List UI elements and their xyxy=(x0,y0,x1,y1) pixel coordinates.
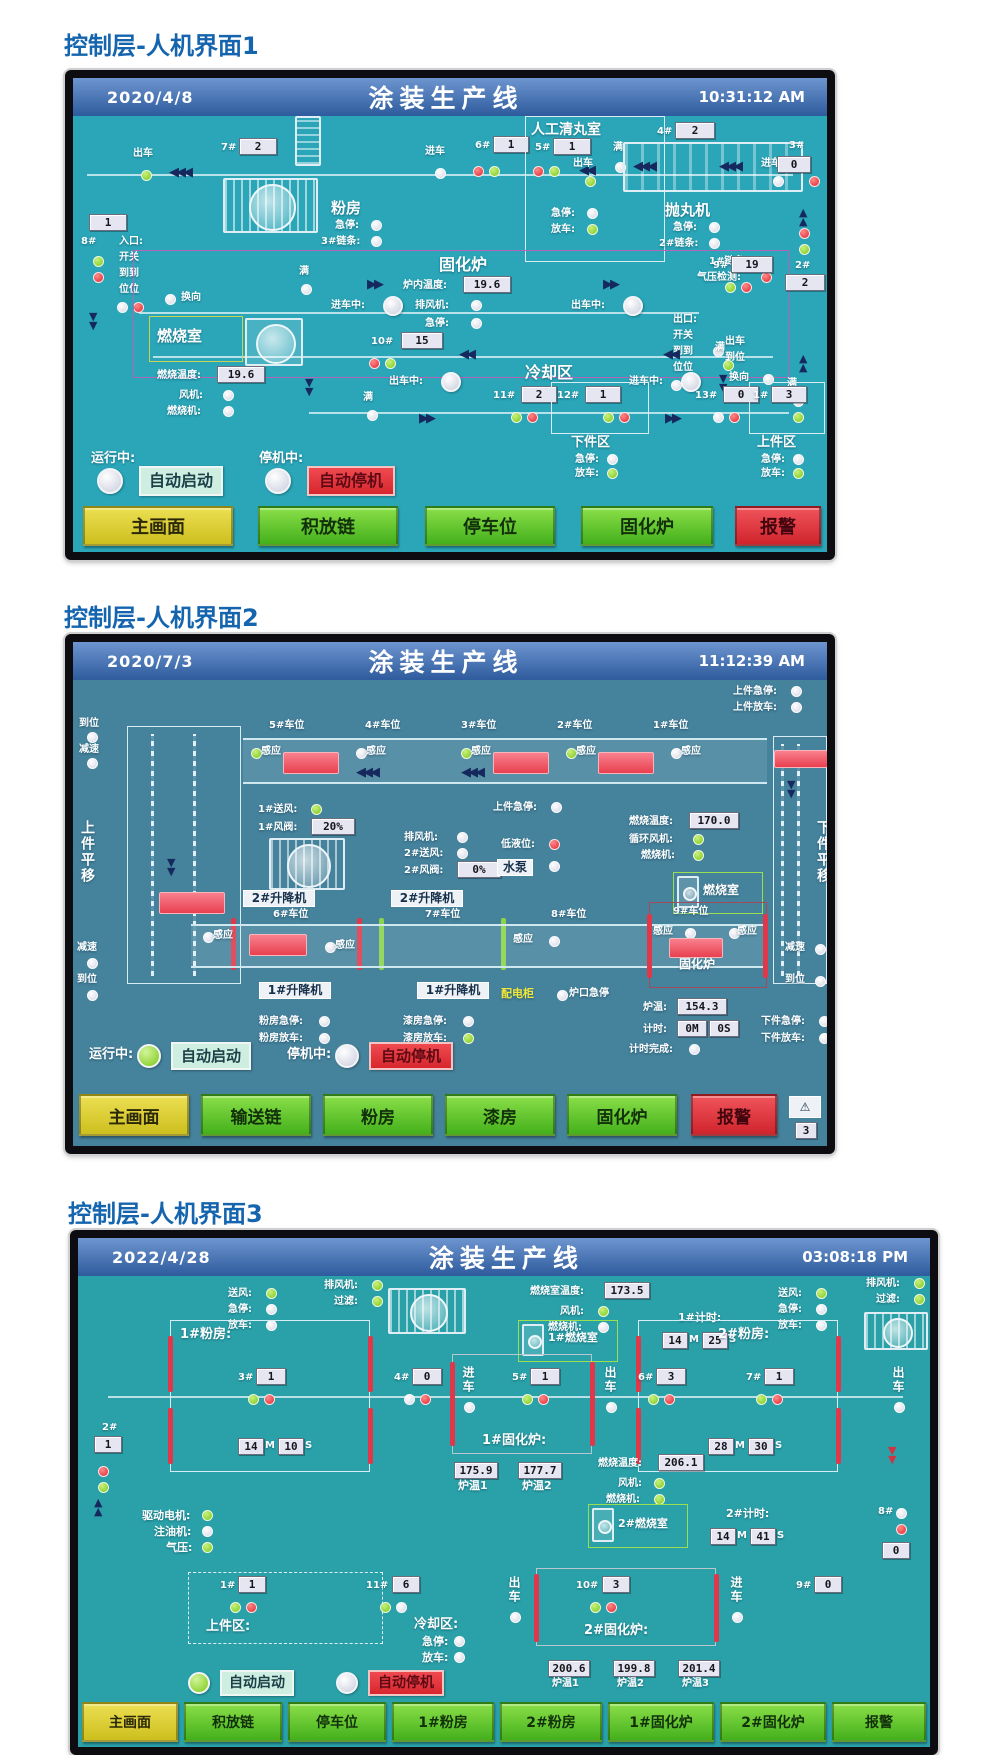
status-dot xyxy=(914,1278,925,1289)
status-dot xyxy=(709,222,720,233)
label: 燃烧机: xyxy=(641,850,675,862)
label: 燃烧室 xyxy=(157,328,202,345)
status-dot xyxy=(598,1306,609,1317)
status-dot xyxy=(648,1394,659,1405)
status-dot xyxy=(87,958,98,969)
screen-header: 2020/7/3 涂装生产线 11:12:39 AM xyxy=(73,642,827,680)
label: 2#粉房: xyxy=(718,1328,769,1343)
value-field[interactable]: 0% xyxy=(457,861,501,878)
mimic-canvas-2: 上件急停:上件放车:到位减速▼ ▼上件平移减速到位▼ ▼下件平移减速到位5#车位… xyxy=(73,680,827,1146)
fan-wheel-icon xyxy=(410,1294,448,1332)
fan-graphic xyxy=(388,1288,466,1334)
label: 4#车位 xyxy=(365,720,400,732)
status-dot xyxy=(896,1524,907,1535)
nav-button-6[interactable]: 报警 xyxy=(691,1094,777,1136)
status-dot xyxy=(819,1033,827,1044)
label: 7# xyxy=(221,142,236,154)
label: 抛丸机 xyxy=(665,202,710,219)
header-clock: 03:08:18 PM xyxy=(802,1248,908,1266)
status-lamp xyxy=(137,1044,161,1068)
label: 运行中: xyxy=(89,1048,133,1063)
lift-post xyxy=(636,1336,641,1392)
label: 9#车位 xyxy=(673,906,708,918)
label: 10# xyxy=(371,336,393,348)
label: 2#风阀: xyxy=(404,865,443,877)
status-dot xyxy=(693,850,704,861)
value-field[interactable]: 1 xyxy=(94,1436,122,1453)
value-field[interactable]: 0S xyxy=(709,1020,739,1037)
workpiece-car xyxy=(283,752,339,774)
action-button[interactable]: 自动停机 xyxy=(307,466,395,496)
label: 2# xyxy=(102,1422,117,1434)
label: 1#送风: xyxy=(258,804,297,816)
fan-graphic xyxy=(269,838,345,890)
value-field[interactable]: 28 xyxy=(708,1438,734,1455)
nav-button-6[interactable]: 1#固化炉 xyxy=(608,1702,714,1742)
label: 5# xyxy=(512,1372,527,1384)
nav-button-3[interactable]: 停车位 xyxy=(288,1702,386,1742)
status-dot xyxy=(471,300,482,311)
label: 感应 xyxy=(366,746,386,758)
value-field[interactable]: 20% xyxy=(311,818,355,835)
status-dot xyxy=(369,358,380,369)
panel-box[interactable]: 1#升降机 xyxy=(417,982,489,999)
status-dot xyxy=(385,358,396,369)
nav-button-1[interactable]: 主画面 xyxy=(82,1702,178,1742)
status-dot xyxy=(606,1602,617,1613)
label: 感应 xyxy=(471,746,491,758)
status-dot xyxy=(607,454,618,465)
label: 风机: xyxy=(179,390,203,402)
status-dot xyxy=(654,1478,665,1489)
action-button[interactable]: 自动停机 xyxy=(368,1670,444,1696)
label: 炉温1 xyxy=(458,1480,488,1493)
status-dot xyxy=(816,1288,827,1299)
value-field[interactable]: 2 xyxy=(785,274,825,291)
nav-button-8[interactable]: 报警 xyxy=(832,1702,926,1742)
label: 漆房急停: xyxy=(403,1016,447,1028)
status-lamp xyxy=(97,468,123,494)
value-field[interactable]: 19.6 xyxy=(217,366,265,383)
flow-arrow-icon: ▼ ▼ xyxy=(89,312,97,330)
status-dot xyxy=(603,412,614,423)
value-field[interactable]: 19 xyxy=(731,256,773,273)
status-dot xyxy=(729,412,740,423)
nav-button-5[interactable]: 固化炉 xyxy=(567,1094,677,1136)
value-field[interactable]: 175.9 xyxy=(454,1462,498,1479)
value-field[interactable]: 14 xyxy=(238,1438,264,1455)
label: 炉内温度: xyxy=(403,280,447,292)
value-field[interactable]: 3 xyxy=(602,1576,630,1593)
flow-arrow-icon: ◀◀◀ xyxy=(169,166,190,179)
panel-box[interactable]: 2#升降机 xyxy=(391,890,463,907)
status-dot xyxy=(549,166,560,177)
status-dot xyxy=(793,454,804,465)
status-dot xyxy=(396,1602,407,1613)
vertical-label: 出车 xyxy=(890,1366,907,1394)
section-title-1: 控制层-人机界面1 xyxy=(64,26,259,61)
rack-graphic xyxy=(295,116,321,166)
value-field[interactable]: 3 xyxy=(795,1122,817,1139)
label: 急停: xyxy=(673,222,697,234)
label: 满 xyxy=(715,342,725,354)
status-dot xyxy=(756,1394,767,1405)
value-field[interactable]: 2 xyxy=(239,138,277,155)
lift-post xyxy=(168,1408,173,1464)
label: 计时完成: xyxy=(629,1044,673,1056)
label: S xyxy=(775,1440,782,1452)
label: 固化炉 xyxy=(439,256,487,274)
status-dot xyxy=(246,1602,257,1613)
label: 出车中: xyxy=(389,376,423,388)
label: 8# xyxy=(878,1506,893,1518)
status-dot xyxy=(799,228,810,239)
flow-arrow-icon: ◀◀◀ xyxy=(356,766,377,779)
status-dot xyxy=(202,1510,213,1521)
value-field[interactable]: 14 xyxy=(710,1528,736,1545)
header-title: 涂装生产线 xyxy=(211,1239,803,1275)
label: 9# xyxy=(713,260,728,272)
label: 1#固化炉: xyxy=(482,1434,546,1449)
nav-button-4[interactable]: 漆房 xyxy=(445,1094,555,1136)
label: 排风机: xyxy=(324,1280,358,1292)
fan-wheel-icon xyxy=(528,1335,542,1349)
status-dot xyxy=(463,1033,474,1044)
status-dot xyxy=(311,804,322,815)
lift-post xyxy=(636,1408,641,1464)
status-dot xyxy=(248,1394,259,1405)
header-title: 涂装生产线 xyxy=(193,643,698,679)
nav-button-1[interactable]: 主画面 xyxy=(83,506,233,546)
nav-button-7[interactable]: 2#固化炉 xyxy=(720,1702,826,1742)
label: 2#车位 xyxy=(557,720,592,732)
status-dot xyxy=(725,282,736,293)
flow-arrow-icon: ▼ ▼ xyxy=(167,858,175,876)
status-dot xyxy=(473,166,484,177)
value-field[interactable]: 6 xyxy=(392,1576,420,1593)
lift-post xyxy=(534,1574,539,1642)
label: 燃烧室温度: xyxy=(530,1286,584,1298)
flow-arrow-icon: ◀◀ xyxy=(459,348,473,361)
status-dot xyxy=(815,976,826,987)
status-dot xyxy=(435,168,446,179)
label: 2#燃烧室 xyxy=(618,1518,668,1531)
label: 出车中: xyxy=(571,300,605,312)
status-dot xyxy=(454,1636,465,1647)
status-dot xyxy=(223,390,234,401)
label: 感应 xyxy=(213,930,233,942)
label: 上件急停: xyxy=(493,802,537,814)
value-field[interactable]: 177.7 xyxy=(518,1462,562,1479)
value-field[interactable]: 0 xyxy=(412,1368,442,1385)
nav-button-3[interactable]: 停车位 xyxy=(425,506,555,546)
status-dot xyxy=(538,1394,549,1405)
label: 满 xyxy=(363,392,373,404)
label: 6# xyxy=(475,140,490,152)
status-dot xyxy=(793,468,804,479)
label: 7# xyxy=(746,1372,761,1384)
label: 进车中: xyxy=(331,300,365,312)
value-field[interactable]: 1 xyxy=(493,136,529,153)
label: 急停: xyxy=(335,220,359,232)
status-dot xyxy=(791,686,802,697)
label: 到位 xyxy=(77,974,97,986)
status-dot xyxy=(98,1466,109,1477)
label: 固化炉 xyxy=(679,958,715,972)
label: 感应 xyxy=(653,926,673,938)
fan-wheel-icon xyxy=(683,887,697,901)
panel-box[interactable]: 1#升降机 xyxy=(259,982,331,999)
status-lamp xyxy=(681,372,701,392)
vertical-label: 进车 xyxy=(460,1366,477,1394)
status-dot xyxy=(380,1602,391,1613)
value-field[interactable]: 1 xyxy=(764,1368,794,1385)
lift-post xyxy=(168,1336,173,1392)
status-dot xyxy=(723,360,734,371)
fan-wheel-icon xyxy=(249,184,296,231)
label: 3# xyxy=(238,1372,253,1384)
value-field[interactable]: 170.0 xyxy=(689,812,739,829)
label: 13# xyxy=(695,390,717,402)
status-dot xyxy=(223,406,234,417)
label: 粉房 xyxy=(331,200,361,217)
label: 11# xyxy=(493,390,515,402)
value-field[interactable]: 2 xyxy=(675,122,715,139)
label: 放车: xyxy=(422,1652,448,1665)
label: 8#车位 xyxy=(551,909,586,921)
label: 循环风机: xyxy=(629,834,673,846)
workpiece-car xyxy=(159,892,225,914)
label: M xyxy=(735,1440,745,1452)
status-dot xyxy=(117,302,128,313)
label: 满 xyxy=(299,266,309,278)
status-lamp xyxy=(265,468,291,494)
value-field[interactable]: 1 xyxy=(256,1368,286,1385)
label: 燃烧温度: xyxy=(629,816,673,828)
burner-graphic xyxy=(522,1324,544,1356)
status-lamp xyxy=(336,1672,358,1694)
status-dot xyxy=(372,1280,383,1291)
label: 注油机: xyxy=(154,1526,191,1539)
nav-button-2[interactable]: 积放链 xyxy=(184,1702,282,1742)
status-dot xyxy=(815,944,826,955)
status-dot xyxy=(371,236,382,247)
status-dot xyxy=(471,318,482,329)
workpiece-car xyxy=(493,752,549,774)
nav-button-1[interactable]: 主画面 xyxy=(79,1094,189,1136)
nav-button-3[interactable]: 粉房 xyxy=(323,1094,433,1136)
status-dot xyxy=(87,758,98,769)
header-date: 2022/4/28 xyxy=(112,1248,211,1267)
lift-post xyxy=(647,914,652,978)
flow-arrow-icon: ◀◀ xyxy=(663,348,677,361)
label: 急停: xyxy=(551,208,575,220)
label: 满 xyxy=(613,142,623,154)
label: 炉温2 xyxy=(617,1678,644,1690)
status-dot xyxy=(713,412,724,423)
label: 驱动电机: xyxy=(142,1510,190,1523)
conveyor-rail xyxy=(781,744,784,976)
value-field[interactable]: 0 xyxy=(882,1542,910,1559)
value-field[interactable]: 10 xyxy=(278,1438,304,1455)
status-dot xyxy=(230,1602,241,1613)
label: 4# xyxy=(394,1372,409,1384)
section-title-2: 控制层-人机界面2 xyxy=(64,598,259,633)
value-field[interactable]: 3 xyxy=(656,1368,686,1385)
label: 出车 xyxy=(573,158,593,170)
label: 排风机: xyxy=(866,1278,900,1290)
label: 3# xyxy=(789,140,804,152)
status-dot xyxy=(557,990,568,1001)
label: 12# xyxy=(557,390,579,402)
status-dot xyxy=(587,208,598,219)
flow-arrow-icon: ◀◀◀ xyxy=(461,766,482,779)
status-dot xyxy=(319,1033,330,1044)
status-dot xyxy=(266,1304,277,1315)
value-field[interactable]: 0M xyxy=(677,1020,707,1037)
label: 感应 xyxy=(576,746,596,758)
label: 炉温1 xyxy=(552,1678,579,1690)
screen-header: 2020/4/8 涂装生产线 10:31:12 AM xyxy=(73,78,827,116)
vertical-label: 出车 xyxy=(602,1366,619,1394)
status-dot xyxy=(511,412,522,423)
nav-button-4[interactable]: 固化炉 xyxy=(581,506,713,546)
value-field[interactable]: 19.6 xyxy=(463,276,511,293)
vertical-label: 进车 xyxy=(728,1576,745,1604)
value-field[interactable]: 1 xyxy=(553,138,591,155)
status-dot xyxy=(551,802,562,813)
value-field[interactable]: 15 xyxy=(401,332,443,349)
fan-wheel-icon xyxy=(883,1318,913,1348)
value-field[interactable]: 30 xyxy=(748,1438,774,1455)
flow-arrow-icon: ▲ ▲ xyxy=(94,1498,102,1516)
flow-arrow-icon: ▶▶ xyxy=(603,278,617,291)
nav-button-5[interactable]: 报警 xyxy=(735,506,821,546)
header-date: 2020/7/3 xyxy=(107,652,193,671)
panel-box[interactable]: 2#升降机 xyxy=(243,890,315,907)
label: 冷却区 xyxy=(525,364,573,382)
status-dot xyxy=(367,410,378,421)
value-field[interactable]: 41 xyxy=(750,1528,776,1545)
label: 1# xyxy=(753,390,768,402)
status-dot xyxy=(773,176,784,187)
status-dot xyxy=(87,732,98,743)
status-dot xyxy=(732,1612,743,1623)
status-dot xyxy=(372,1296,383,1307)
action-button[interactable]: 自动启动 xyxy=(171,1042,251,1070)
action-button[interactable]: 自动停机 xyxy=(369,1042,453,1070)
label: 风机: xyxy=(618,1478,642,1490)
workpiece-car xyxy=(249,934,307,956)
status-dot xyxy=(510,1612,521,1623)
label: 燃烧温度: xyxy=(598,1458,642,1470)
value-field[interactable]: 199.8 xyxy=(613,1660,655,1677)
nav-button-4[interactable]: 1#粉房 xyxy=(392,1702,494,1742)
header-title: 涂装生产线 xyxy=(193,79,698,115)
label: 粉房急停: xyxy=(259,1016,303,1028)
header-clock: 11:12:39 AM xyxy=(699,652,805,670)
lift-post xyxy=(836,1408,841,1464)
status-dot xyxy=(819,1016,827,1027)
mimic-canvas-3: 送风:急停:放车:排风机:过滤:燃烧室温度:173.5风机:燃烧机:1#计时:1… xyxy=(78,1276,930,1747)
action-button[interactable]: 自动启动 xyxy=(139,466,223,496)
value-field[interactable]: 200.6 xyxy=(548,1660,590,1677)
section-title-3: 控制层-人机界面3 xyxy=(68,1194,263,1229)
value-field[interactable]: 1 xyxy=(530,1368,560,1385)
status-dot xyxy=(590,1602,601,1613)
status-dot xyxy=(549,839,560,850)
label: 停机中: xyxy=(287,1048,331,1063)
label: 2#计时: xyxy=(726,1508,769,1521)
flow-arrow-icon: ▲ ▲ xyxy=(799,354,807,372)
value-field[interactable]: 206.1 xyxy=(658,1454,704,1471)
value-field[interactable]: 1 xyxy=(238,1576,266,1593)
value-field[interactable]: 0 xyxy=(814,1576,842,1593)
fan-wheel-icon xyxy=(287,844,331,888)
label: 上件放车: xyxy=(733,702,777,714)
label: 送风: xyxy=(778,1288,802,1300)
label: 过滤: xyxy=(334,1296,358,1308)
status-dot xyxy=(93,256,104,267)
panel-box[interactable]: 水泵 xyxy=(497,859,533,876)
mimic-canvas-1: 7#2出车◀◀◀粉房急停:3#链条:进车6#1人工清丸室5#1◀◀满急停:放车:… xyxy=(73,116,827,552)
fan-graphic xyxy=(223,178,318,233)
label: M xyxy=(265,1440,275,1452)
value-field[interactable]: 154.3 xyxy=(677,998,727,1015)
status-dot xyxy=(98,1482,109,1493)
label: 急停: xyxy=(761,454,785,466)
label: 感应 xyxy=(681,746,701,758)
value-field[interactable]: 1 xyxy=(89,214,127,231)
label: 下件放车: xyxy=(761,1033,805,1045)
label: 进车 xyxy=(425,146,445,158)
label: 排风机: xyxy=(415,300,449,312)
label: 3#链条: xyxy=(321,236,360,248)
label: 11# xyxy=(366,1580,388,1592)
action-button[interactable]: 自动启动 xyxy=(220,1670,294,1696)
label: 炉口急停 xyxy=(569,988,609,1000)
label: 1#粉房: xyxy=(180,1328,231,1343)
label: 1# xyxy=(220,1580,235,1592)
flow-arrow-icon: ▼ ▼ xyxy=(787,780,795,798)
status-dot xyxy=(420,1394,431,1405)
status-dot xyxy=(404,1394,415,1405)
value-field[interactable]: 173.5 xyxy=(604,1282,650,1299)
status-dot xyxy=(549,936,560,947)
warning-icon[interactable]: ⚠ xyxy=(789,1096,821,1118)
status-dot xyxy=(799,244,810,255)
label: 感应 xyxy=(513,934,533,946)
nav-button-5[interactable]: 2#粉房 xyxy=(500,1702,602,1742)
label: 2#送风: xyxy=(404,848,443,860)
value-field[interactable]: 3 xyxy=(771,386,807,403)
value-field[interactable]: 1 xyxy=(585,386,621,403)
lift-post xyxy=(836,1336,841,1392)
value-field[interactable]: 201.4 xyxy=(678,1660,720,1677)
label: 急停: xyxy=(425,318,449,330)
label: 上件区: xyxy=(206,1620,250,1635)
nav-button-2[interactable]: 积放链 xyxy=(258,506,398,546)
label: 2#固化炉: xyxy=(584,1624,648,1639)
value-field[interactable]: 0 xyxy=(777,156,811,173)
vertical-label: 出车 xyxy=(506,1576,523,1604)
nav-button-2[interactable]: 输送链 xyxy=(201,1094,311,1136)
label: 粉房放车: xyxy=(259,1033,303,1045)
label: 减速 xyxy=(79,744,99,756)
status-dot xyxy=(489,166,500,177)
vertical-label: 上件平移 xyxy=(77,820,97,884)
status-lamp xyxy=(441,372,461,392)
